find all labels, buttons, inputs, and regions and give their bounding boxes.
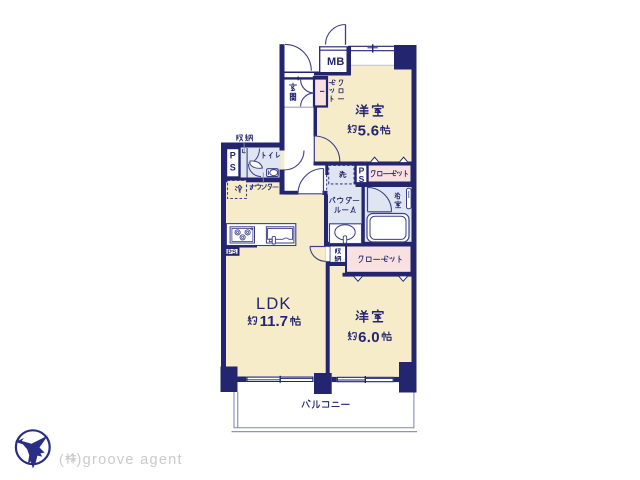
svg-text:P: P (230, 151, 236, 161)
svg-text:6.0: 6.0 (358, 329, 380, 346)
svg-text:MB: MB (327, 56, 345, 68)
svg-text:(: ( (59, 451, 64, 467)
svg-text:11.7: 11.7 (260, 313, 288, 330)
svg-text:PS: PS (227, 249, 237, 256)
svg-text:S: S (359, 174, 365, 184)
svg-text:LDK: LDK (256, 295, 292, 313)
svg-text:)groove agent: )groove agent (77, 452, 183, 468)
svg-text:5.6: 5.6 (358, 122, 380, 139)
svg-text:S: S (230, 163, 236, 173)
